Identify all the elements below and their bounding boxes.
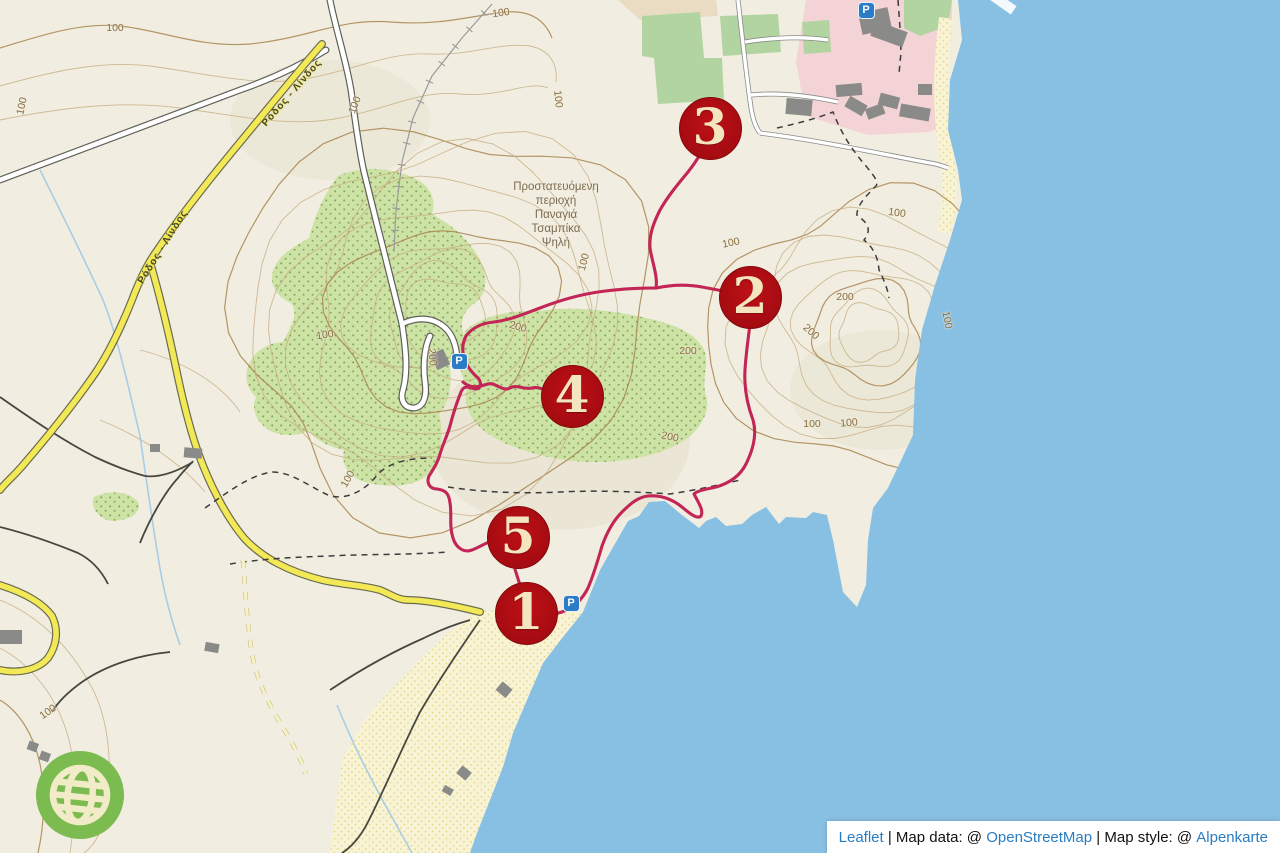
waypoint-marker-3[interactable]: 3	[679, 97, 742, 160]
park-green-1	[642, 12, 724, 104]
forest-south-lobe	[345, 438, 422, 485]
yellow-footpath	[243, 560, 306, 774]
waypoint-number: 1	[509, 582, 544, 641]
attribution-bar: Leaflet | Map data: @ OpenStreetMap | Ma…	[827, 821, 1280, 853]
waypoint-number: 2	[733, 266, 768, 325]
attribution-link-alpenkarte[interactable]: Alpenkarte	[1196, 829, 1268, 846]
waypoint-number: 4	[555, 365, 590, 424]
forest-small-west	[93, 492, 139, 521]
park-green-2	[720, 14, 781, 56]
yellow-footpath-casing	[243, 560, 306, 774]
waypoint-marker-4[interactable]: 4	[541, 365, 604, 428]
attribution-link-leaflet[interactable]: Leaflet	[839, 829, 884, 846]
waypoint-marker-2[interactable]: 2	[719, 266, 782, 329]
waypoint-number: 5	[501, 506, 536, 565]
map-artwork	[0, 0, 1280, 853]
waypoint-number: 3	[693, 97, 728, 156]
attribution-text: | Map data: @	[884, 829, 987, 846]
attribution-link-openstreetmap[interactable]: OpenStreetMap	[986, 829, 1092, 846]
waypoint-marker-1[interactable]: 1	[495, 582, 558, 645]
map-canvas[interactable]: 1001001001001001001001002002001002002002…	[0, 0, 1280, 853]
attribution-text: | Map style: @	[1092, 829, 1196, 846]
waypoint-marker-5[interactable]: 5	[487, 506, 550, 569]
